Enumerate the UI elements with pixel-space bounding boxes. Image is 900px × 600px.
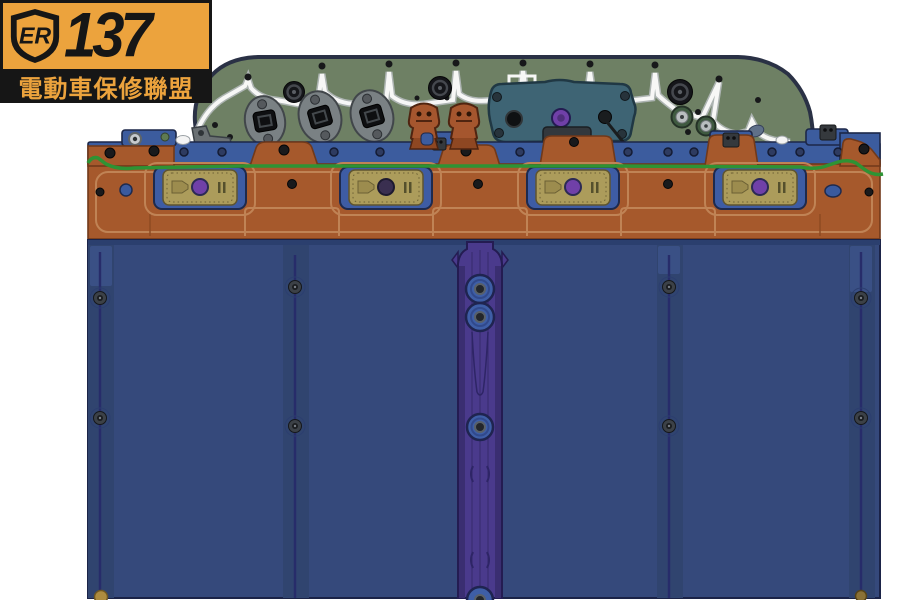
round-port (506, 111, 522, 127)
screw (493, 93, 502, 102)
plate-fastener (565, 179, 581, 195)
blue-hole (120, 184, 132, 196)
grommet (429, 77, 452, 100)
seam-fastener (285, 277, 305, 297)
logo-number: 137 (64, 5, 149, 68)
seam-fastener (90, 288, 110, 308)
logo-top-box: ER 137 (0, 0, 212, 69)
gold-screw (95, 591, 108, 600)
logo-subtitle: 電動車保修聯盟 (0, 69, 212, 103)
mounting-plate (705, 163, 815, 215)
mounting-plate (145, 163, 255, 215)
center-channel (452, 242, 508, 600)
shield-letters: ER (19, 23, 51, 49)
plate-fastener (752, 179, 768, 195)
mounting-plate (331, 163, 441, 215)
battery-enclosure-panel (88, 240, 880, 600)
hv-terminal (449, 104, 479, 150)
two-pin-connector (820, 125, 836, 140)
two-pin-connector (723, 133, 739, 147)
stamped-keyhole (358, 181, 374, 193)
er137-logo: ER 137 電動車保修聯盟 (0, 0, 212, 103)
seam-fastener (285, 416, 305, 436)
channel-boss (466, 303, 494, 331)
seam-fastener (659, 416, 679, 436)
er-shield-icon: ER (8, 7, 62, 65)
channel-boss (467, 414, 493, 440)
plate-fastener (192, 179, 208, 195)
mounting-plate (518, 163, 628, 215)
stamped-keyhole (732, 181, 748, 193)
stamped-keyhole (172, 181, 188, 193)
seam-fastener (851, 408, 871, 428)
grommet (284, 82, 305, 103)
seam-fastener (90, 408, 110, 428)
grommet (668, 80, 693, 105)
seam-fastener (659, 277, 679, 297)
oval-slot (176, 136, 190, 145)
oval-slot (776, 136, 788, 144)
plate-fastener (378, 179, 394, 195)
channel-boss (466, 275, 494, 303)
seam-fastener (851, 288, 871, 308)
ev-battery-pack-diagram: ER 137 電動車保修聯盟 (0, 0, 900, 600)
screw (495, 129, 504, 138)
blue-nub (421, 133, 433, 145)
green-grommet (161, 133, 169, 141)
gold-screw (856, 591, 867, 600)
blue-hole (825, 185, 841, 197)
screw (621, 92, 630, 101)
stamped-keyhole (545, 181, 561, 193)
